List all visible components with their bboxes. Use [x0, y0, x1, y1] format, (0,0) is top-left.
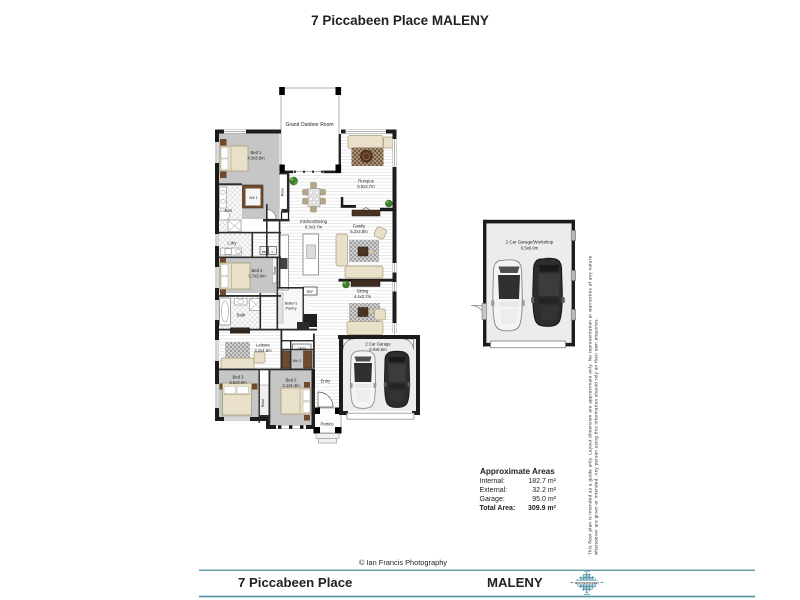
svg-text:Bath: Bath: [237, 313, 246, 318]
svg-text:Linen: Linen: [298, 347, 307, 351]
svg-text:Leisure: Leisure: [256, 343, 270, 348]
svg-text:Robe: Robe: [273, 266, 277, 274]
svg-text:6.0x5.5m: 6.0x5.5m: [369, 347, 387, 352]
svg-text:Sitting: Sitting: [357, 289, 369, 294]
svg-text:4.4x3.7m: 4.4x3.7m: [354, 294, 372, 299]
svg-text:Portico: Portico: [320, 422, 334, 427]
svg-text:L'dry: L'dry: [228, 241, 238, 246]
svg-text:REF: REF: [307, 290, 314, 294]
svg-text:Entry: Entry: [321, 379, 332, 384]
svg-text:MALENY: MALENY: [487, 575, 543, 590]
svg-text:External:: External:: [480, 487, 508, 494]
svg-text:95.0 m²: 95.0 m²: [532, 496, 556, 503]
svg-text:Wir 1: Wir 1: [249, 196, 257, 200]
svg-text:Rumpus: Rumpus: [358, 179, 374, 184]
svg-text:Internal:: Internal:: [480, 478, 505, 485]
svg-text:8.3x3.7m: 8.3x3.7m: [305, 225, 323, 230]
svg-text:3.2x4.6m: 3.2x4.6m: [254, 348, 272, 353]
svg-text:Garage:: Garage:: [480, 496, 505, 503]
svg-text:BRANT ALBONNAIRET: BRANT ALBONNAIRET: [575, 581, 599, 585]
svg-text:Pantry: Pantry: [286, 307, 297, 311]
svg-text:Bed 2: Bed 2: [286, 378, 298, 383]
svg-text:7 Piccabeen Place: 7 Piccabeen Place: [238, 575, 352, 590]
svg-text:Approximate Areas: Approximate Areas: [480, 467, 555, 476]
svg-text:whatsoever are given or intend: whatsoever are given or intended. Any pe…: [594, 318, 599, 555]
svg-text:Bed 4: Bed 4: [252, 268, 264, 273]
svg-text:182.7 m²: 182.7 m²: [528, 478, 556, 485]
svg-text:2 Car Garage/Workshop: 2 Car Garage/Workshop: [506, 240, 554, 245]
svg-text:Butler's: Butler's: [285, 302, 298, 306]
svg-text:Robe: Robe: [261, 399, 265, 408]
svg-text:6.5x6.0m: 6.5x6.0m: [521, 246, 539, 251]
svg-text:32.2 m²: 32.2 m²: [532, 487, 556, 494]
svg-text:Wir 2: Wir 2: [293, 359, 302, 363]
svg-text:© Ian Francis Photography: © Ian Francis Photography: [359, 558, 447, 567]
svg-text:Bed 3: Bed 3: [233, 375, 245, 380]
svg-text:2 Car Garage: 2 Car Garage: [365, 342, 391, 347]
svg-text:3.1x4.4m: 3.1x4.4m: [282, 383, 300, 388]
svg-text:3.5x3.0m: 3.5x3.0m: [229, 380, 247, 385]
svg-text:Grand Outdoor Room: Grand Outdoor Room: [285, 122, 333, 128]
svg-text:Family: Family: [353, 224, 366, 229]
svg-text:309.9 m²: 309.9 m²: [528, 505, 557, 512]
svg-text:5.2x3.8m: 5.2x3.8m: [350, 229, 368, 234]
svg-text:4.3x3.8m: 4.3x3.8m: [247, 156, 265, 161]
svg-text:Robe: Robe: [281, 188, 285, 197]
svg-text:5.5x3.7m: 5.5x3.7m: [357, 184, 375, 189]
svg-text:Ens: Ens: [225, 208, 232, 213]
svg-text:This floor plan is intended as: This floor plan is intended as a guide o…: [588, 255, 593, 555]
svg-text:3.7x3.0m: 3.7x3.0m: [248, 274, 266, 279]
svg-text:7 Piccabeen Place MALENY: 7 Piccabeen Place MALENY: [311, 13, 489, 28]
svg-text:Kitchen/Dining: Kitchen/Dining: [300, 219, 328, 224]
svg-text:Total Area:: Total Area:: [480, 505, 516, 512]
svg-text:Bed 1: Bed 1: [251, 150, 263, 155]
